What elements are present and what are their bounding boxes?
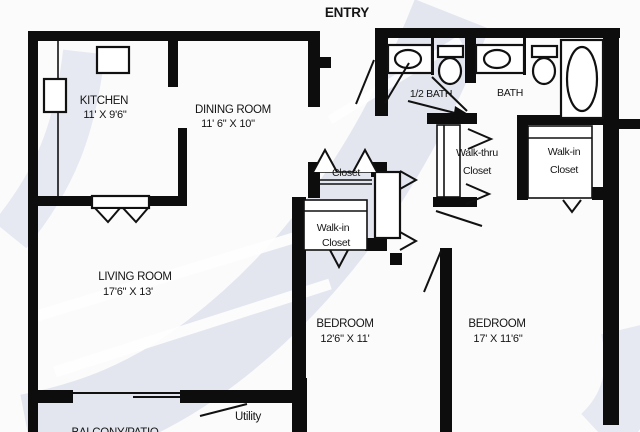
wall-segment [178, 128, 187, 197]
toilet-icon [439, 58, 461, 84]
floor-plan-page: ENTRY KITCHEN 11' X 9'6" DINING ROOM 11'… [0, 0, 640, 432]
entry-label: ENTRY [325, 5, 369, 20]
dining-room-label: DINING ROOM [195, 104, 271, 116]
walkthru-closet-outline [437, 125, 460, 197]
wall-segment [28, 390, 73, 403]
wall-segment [180, 390, 305, 403]
bedroom-center-dims: 12'6" X 11' [320, 333, 369, 345]
bedroom-right-label: BEDROOM [468, 318, 525, 330]
kitchen-label: KITCHEN [80, 95, 128, 107]
wall-segment [427, 113, 477, 124]
living-room-dims: 17'6" X 13' [103, 286, 153, 298]
living-room-label: LIVING ROOM [98, 271, 171, 283]
closet-label: Closet [332, 167, 360, 179]
wall-segment [390, 253, 402, 265]
toilet-icon [533, 58, 555, 84]
walk-thru-closet-label: Walk-thru [456, 147, 498, 159]
wall-segment [147, 196, 187, 206]
kitchen-passthrough-counter [92, 196, 149, 208]
bath-label: BATH [497, 87, 523, 99]
floor-plan-canvas: ENTRY KITCHEN 11' X 9'6" DINING ROOM 11'… [0, 0, 640, 432]
wall-segment [375, 28, 620, 38]
walk-in-right-label: Walk-in [548, 146, 581, 158]
wall-segment [619, 119, 640, 129]
wall-segment [365, 238, 387, 251]
refrigerator-icon [44, 79, 66, 112]
kitchen-dims: 11' X 9'6" [83, 109, 127, 121]
stove-icon [97, 47, 129, 73]
wall-segment [440, 248, 452, 432]
hall-door-panel [375, 172, 400, 238]
walkin-right-outline [528, 126, 592, 198]
wall-segment [308, 31, 320, 107]
bedroom-center-label: BEDROOM [316, 318, 373, 330]
wall-segment [465, 28, 476, 83]
wall-segment [318, 57, 331, 68]
wall-segment [592, 187, 603, 200]
wall-segment [293, 378, 307, 432]
wall-segment [603, 28, 619, 425]
wall-segment [28, 31, 320, 41]
dining-room-dims: 11' 6" X 10" [201, 118, 255, 130]
bathtub-icon [567, 47, 597, 111]
walk-thru-closet-label2: Closet [463, 165, 491, 177]
sink-icon [484, 50, 510, 68]
bedroom-right-dims: 17' X 11'6" [473, 333, 522, 345]
walk-in-center-label: Walk-in [317, 222, 350, 234]
half-bath-label: 1/2 BATH [410, 88, 452, 100]
toilet-tank [438, 46, 463, 57]
wall-segment [168, 41, 178, 87]
walk-in-right-label2: Closet [550, 164, 578, 176]
wall-segment [28, 31, 38, 432]
walk-in-center-label2: Closet [322, 237, 350, 249]
balcony-patio-label: BALCONY/PATIO [71, 427, 158, 432]
utility-label: Utility [235, 411, 262, 423]
wall-segment [517, 115, 528, 200]
toilet-tank [532, 46, 557, 57]
wall-segment [38, 196, 94, 206]
